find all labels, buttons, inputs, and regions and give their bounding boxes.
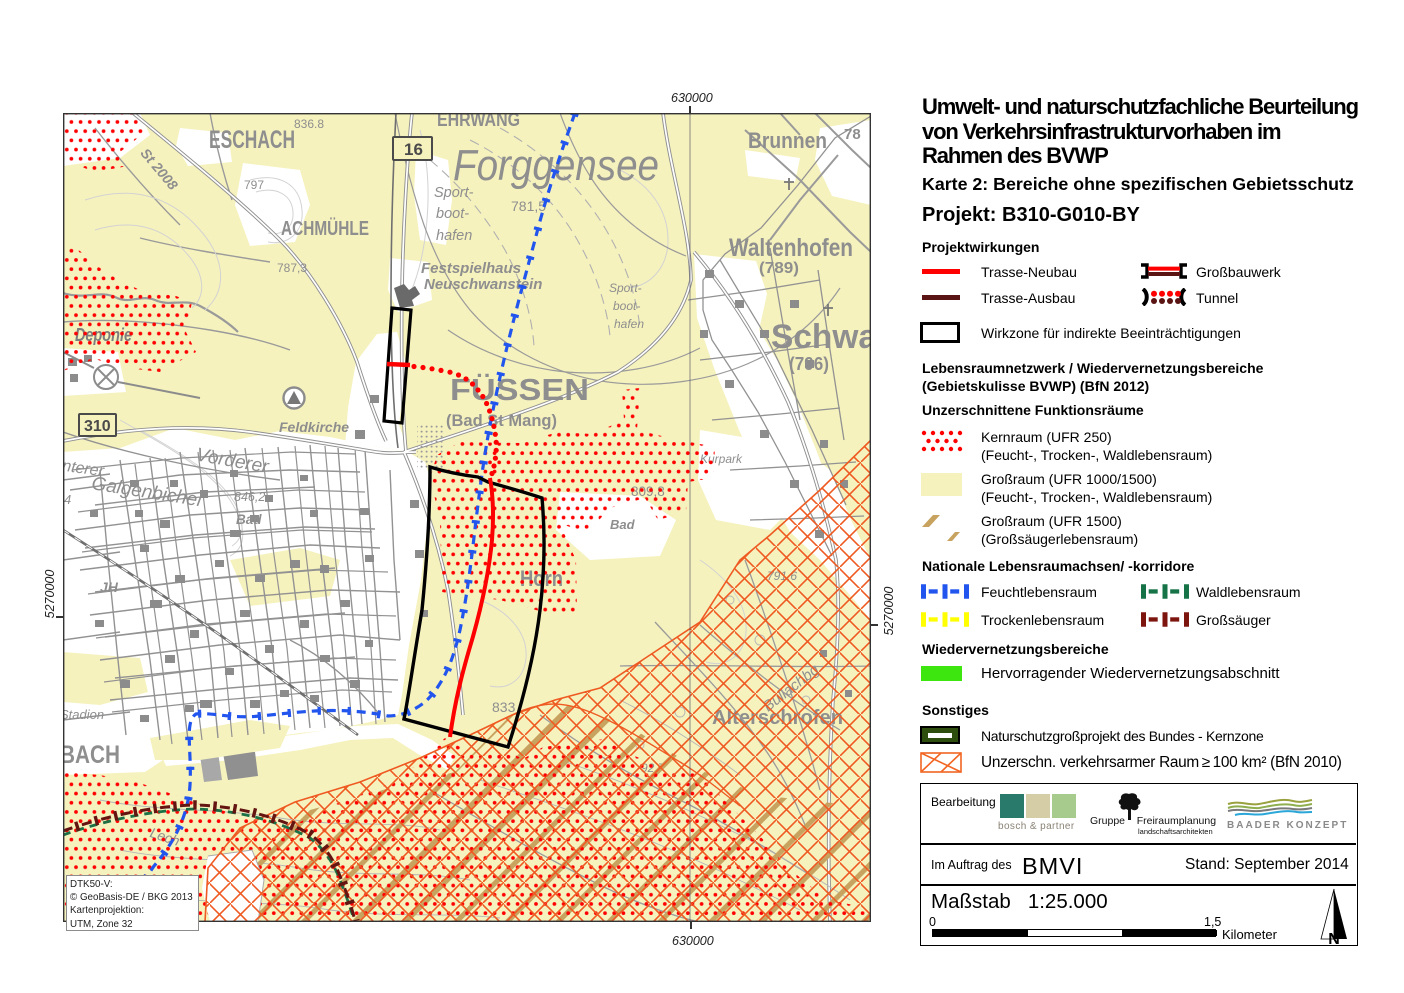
svg-text:ESCHACH: ESCHACH — [209, 126, 295, 154]
svg-text:Brunnen: Brunnen — [748, 128, 827, 153]
svg-text:(789): (789) — [759, 260, 799, 277]
svg-text:781,5: 781,5 — [511, 198, 546, 214]
svg-text:846,2: 846,2 — [234, 490, 265, 504]
svg-text:Sport-: Sport- — [434, 185, 474, 201]
svg-text:836.8: 836.8 — [294, 117, 324, 131]
svg-text:Feldkirche: Feldkirche — [279, 419, 349, 435]
svg-text:Waltenhofen: Waltenhofen — [729, 234, 853, 262]
svg-text:hafen: hafen — [614, 317, 644, 331]
svg-text:(796): (796) — [789, 354, 829, 374]
svg-text:EHRWANG: EHRWANG — [437, 113, 520, 131]
svg-text:JH: JH — [100, 579, 119, 595]
svg-text:(Bad St Mang): (Bad St Mang) — [446, 411, 557, 430]
svg-text:FÜSSEN: FÜSSEN — [450, 372, 589, 407]
svg-text:Schwa: Schwa — [771, 318, 871, 356]
svg-text:Stadion: Stadion — [63, 707, 104, 722]
svg-text:833: 833 — [492, 699, 516, 715]
svg-text:Bad: Bad — [236, 512, 262, 527]
svg-text:787,3: 787,3 — [277, 261, 307, 275]
svg-text:16: 16 — [404, 140, 423, 159]
svg-text:ACHMÜHLE: ACHMÜHLE — [281, 217, 369, 240]
svg-text:78: 78 — [844, 126, 861, 143]
svg-text:BACH: BACH — [63, 741, 120, 769]
svg-text:Forggensee: Forggensee — [453, 141, 659, 190]
svg-text:Festspielhaus: Festspielhaus — [421, 260, 521, 277]
svg-text:boot-: boot- — [613, 299, 640, 313]
svg-text:N: N — [1328, 931, 1340, 945]
svg-text:310: 310 — [84, 418, 111, 435]
svg-text:Bad: Bad — [610, 517, 636, 532]
svg-text:hafen: hafen — [436, 228, 472, 244]
svg-text:Sport-: Sport- — [609, 281, 642, 295]
svg-text:boot-: boot- — [436, 206, 469, 222]
svg-text:4: 4 — [64, 492, 71, 507]
svg-text:797: 797 — [244, 178, 264, 192]
